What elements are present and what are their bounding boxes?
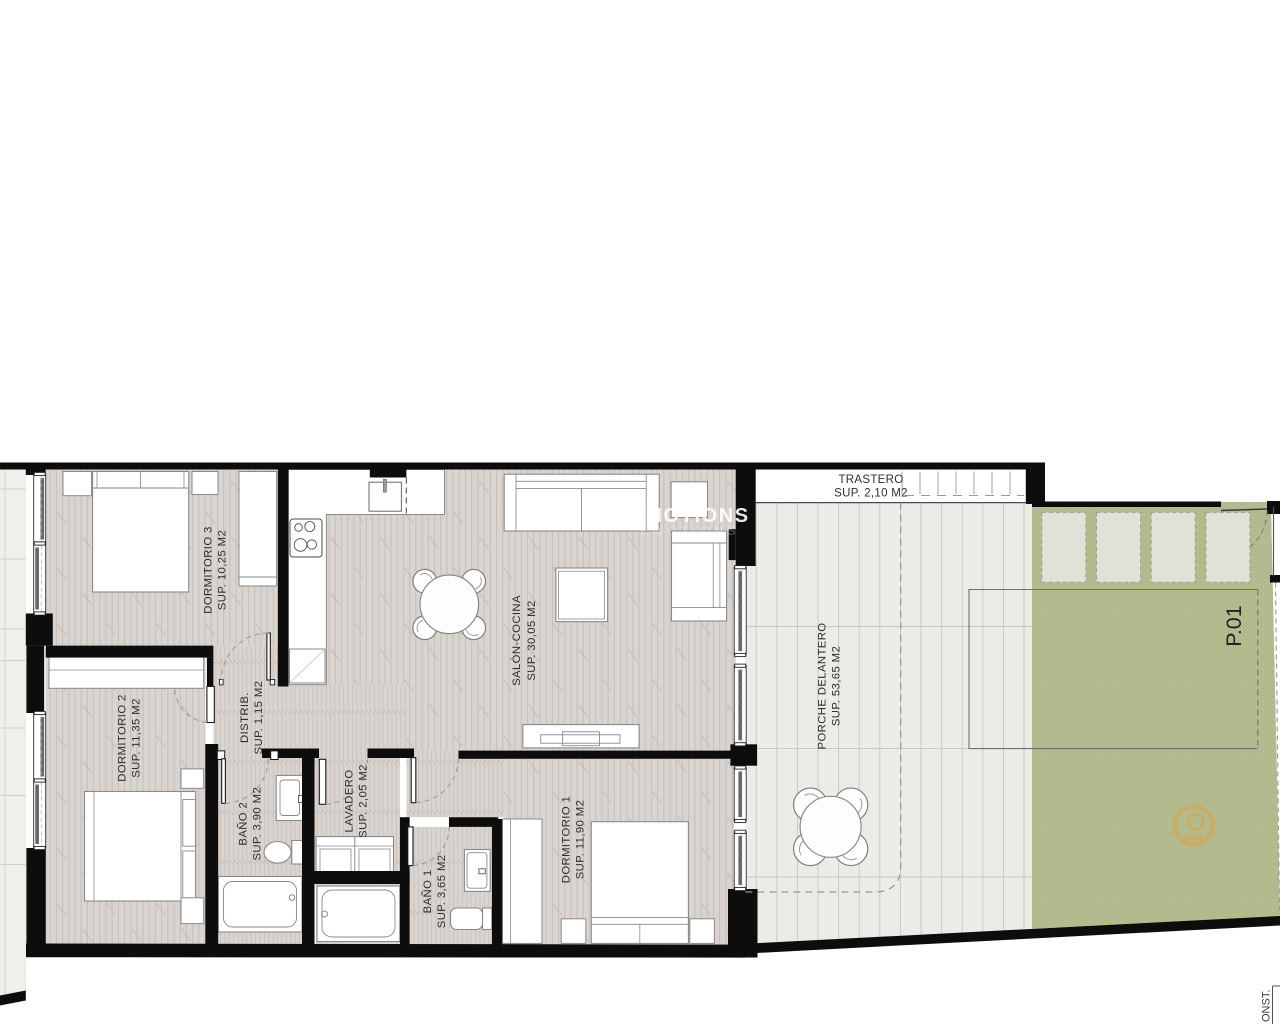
- svg-text:SUP. 2,05 M2: SUP. 2,05 M2: [357, 764, 369, 838]
- svg-text:SUP. 10,25 M2: SUP. 10,25 M2: [217, 530, 229, 610]
- svg-text:TRASTERO: TRASTERO: [838, 474, 903, 486]
- svg-text:SUP. 3,65 M2: SUP. 3,65 M2: [436, 855, 448, 929]
- svg-text:P.01: P.01: [1222, 605, 1246, 646]
- svg-text:ONST.: ONST.: [1261, 990, 1273, 1022]
- svg-text:SUP. 2,10 M2: SUP. 2,10 M2: [834, 488, 908, 500]
- svg-text:DISTRIB.: DISTRIB.: [239, 692, 251, 743]
- svg-text:DORMITORIO 1: DORMITORIO 1: [561, 796, 573, 883]
- svg-text:LAVADERO: LAVADERO: [343, 769, 355, 832]
- svg-text:DORMITORIO 3: DORMITORIO 3: [203, 526, 215, 613]
- svg-text:SUP. 3,90 M2: SUP. 3,90 M2: [251, 787, 263, 861]
- svg-text:SUP. 53,65 M2: SUP. 53,65 M2: [830, 646, 842, 726]
- svg-text:SUP. 1,15 M2: SUP. 1,15 M2: [253, 681, 265, 755]
- svg-text:DORMITORIO 2: DORMITORIO 2: [116, 694, 128, 781]
- svg-text:SUP. 11,90 M2: SUP. 11,90 M2: [574, 800, 586, 880]
- svg-text:BAÑO 1: BAÑO 1: [421, 869, 434, 913]
- svg-text:BAÑO 2: BAÑO 2: [236, 802, 249, 846]
- svg-text:SUP. 30,05 M2: SUP. 30,05 M2: [526, 600, 538, 680]
- svg-text:EMOTIONS: EMOTIONS: [640, 524, 740, 538]
- svg-text:SALÓN-COCINA: SALÓN-COCINA: [510, 595, 523, 686]
- svg-text:PORCHE DELANTERO: PORCHE DELANTERO: [817, 623, 829, 750]
- svg-text:SUP. 11,35 M2: SUP. 11,35 M2: [130, 698, 142, 778]
